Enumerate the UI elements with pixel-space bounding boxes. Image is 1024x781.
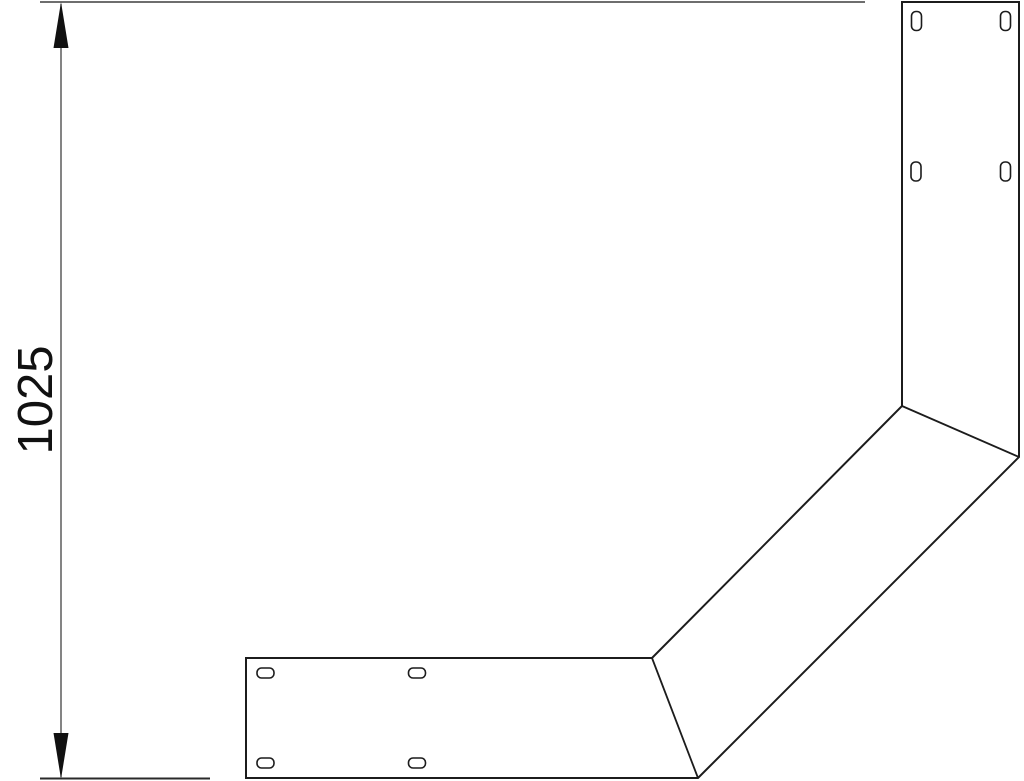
dimension-arrow-bottom bbox=[54, 733, 69, 779]
mounting-slot-bottom-left-lower bbox=[257, 758, 274, 768]
part-outline bbox=[246, 2, 1019, 778]
technical-drawing-page: 1025 bbox=[0, 0, 1024, 781]
mounting-slot-bottom-left-upper bbox=[257, 668, 274, 678]
mounting-slot-bottom-right-upper bbox=[409, 668, 426, 678]
mounting-slot-top-left bbox=[912, 12, 922, 31]
dimension-arrow-top bbox=[54, 2, 69, 48]
dimension-value: 1025 bbox=[9, 345, 63, 454]
bend-line-upper bbox=[902, 406, 1019, 457]
mounting-slot-top-right bbox=[1001, 12, 1011, 31]
height-dimension: 1025 bbox=[9, 2, 865, 779]
bend-line-lower bbox=[652, 658, 698, 778]
mounting-slot-mid-right bbox=[1001, 162, 1011, 181]
technical-drawing-canvas: 1025 bbox=[0, 0, 1024, 781]
bracket-flat-pattern bbox=[246, 2, 1019, 778]
mounting-slot-bottom-right-lower bbox=[409, 758, 426, 768]
mounting-slot-mid-left bbox=[911, 162, 921, 181]
